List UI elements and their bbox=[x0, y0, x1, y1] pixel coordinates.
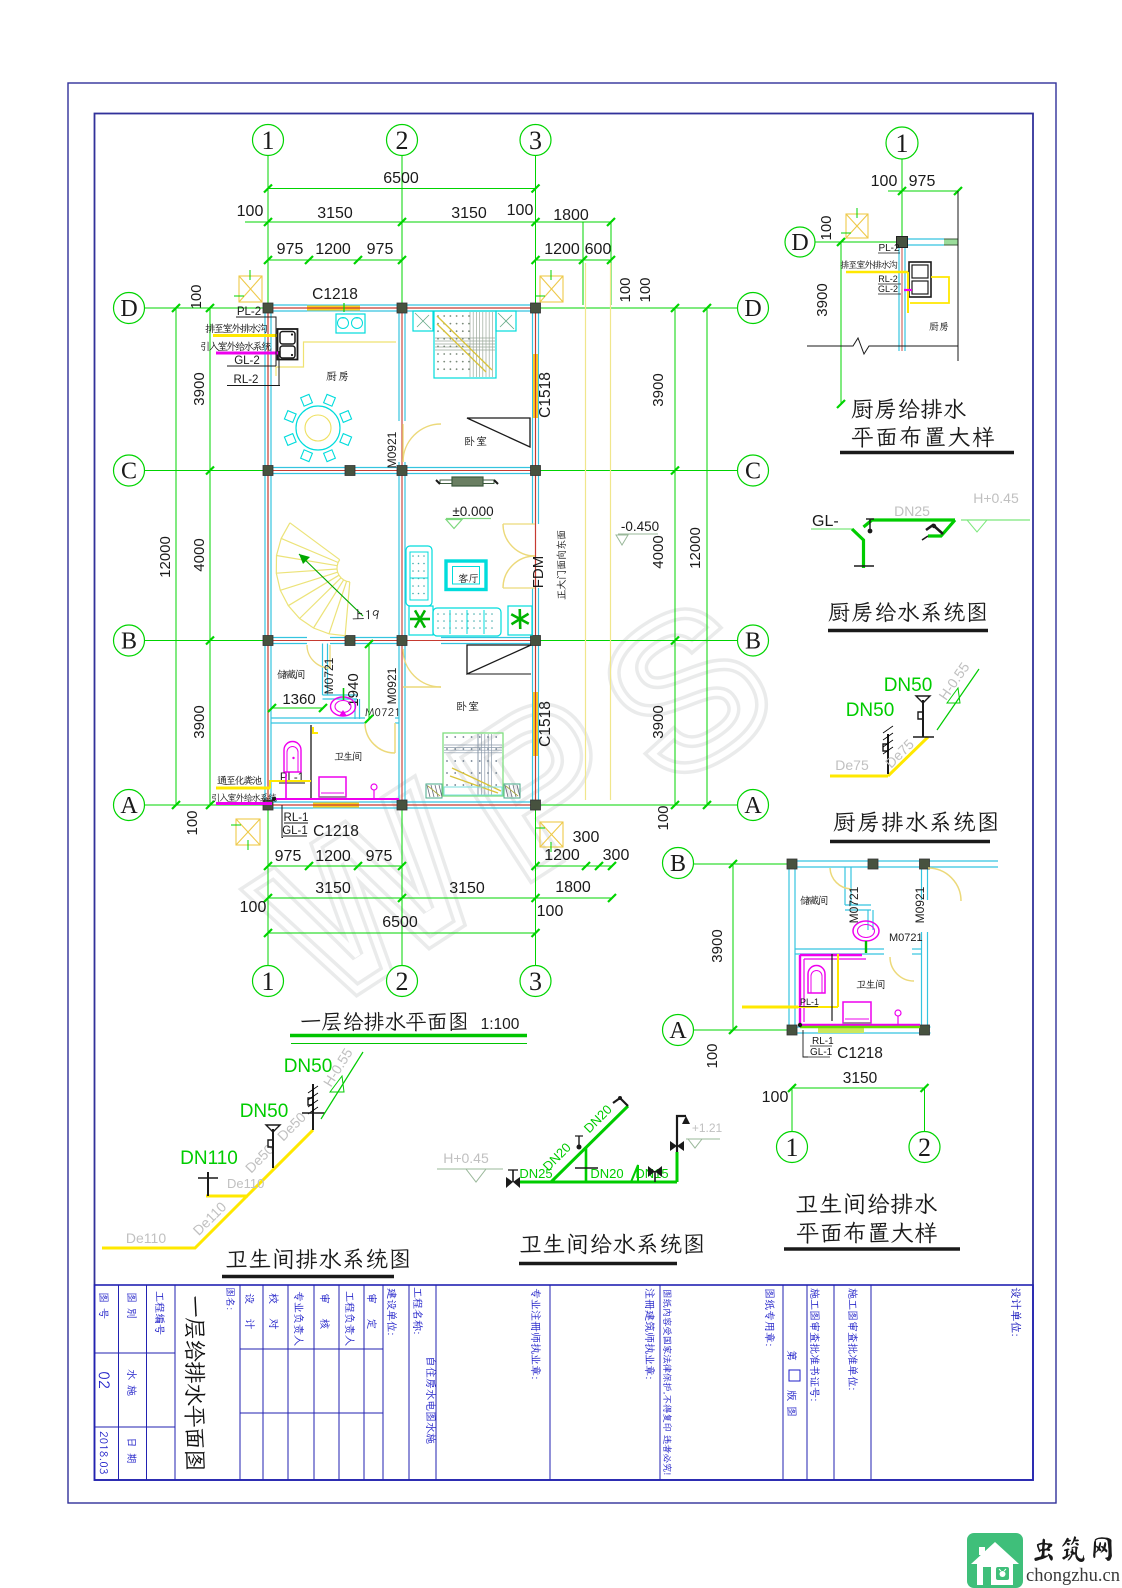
svg-text:±0.000: ±0.000 bbox=[452, 504, 493, 519]
svg-text:1800: 1800 bbox=[553, 207, 589, 224]
svg-text:1: 1 bbox=[262, 967, 275, 996]
svg-text:M0721: M0721 bbox=[847, 886, 861, 923]
svg-text:975: 975 bbox=[367, 241, 394, 258]
svg-text:3: 3 bbox=[529, 967, 542, 996]
svg-text:DN50: DN50 bbox=[846, 700, 895, 721]
svg-text:12000: 12000 bbox=[687, 527, 704, 569]
svg-text:RL-1: RL-1 bbox=[812, 1036, 834, 1047]
svg-text:4000: 4000 bbox=[191, 538, 208, 571]
svg-text:D: D bbox=[791, 230, 808, 256]
svg-text:1800: 1800 bbox=[555, 879, 591, 896]
svg-text:PL-1: PL-1 bbox=[800, 997, 819, 1007]
svg-text:1: 1 bbox=[786, 1133, 799, 1162]
svg-text:3900: 3900 bbox=[191, 705, 208, 738]
svg-text:6500: 6500 bbox=[382, 914, 418, 931]
svg-text:GL-1: GL-1 bbox=[810, 1047, 833, 1058]
svg-text:chongzhu.cn: chongzhu.cn bbox=[1026, 1566, 1120, 1586]
svg-text:M0921: M0921 bbox=[385, 667, 399, 704]
svg-text:GL-1: GL-1 bbox=[282, 825, 308, 837]
svg-text:De75: De75 bbox=[835, 757, 869, 773]
svg-text:4000: 4000 bbox=[650, 535, 667, 568]
svg-text:100: 100 bbox=[704, 1043, 721, 1068]
svg-text:DN50: DN50 bbox=[884, 675, 933, 696]
svg-text:600: 600 bbox=[585, 241, 612, 258]
svg-text:3150: 3150 bbox=[315, 880, 351, 897]
svg-text:100: 100 bbox=[762, 1089, 789, 1106]
svg-text:+1.21: +1.21 bbox=[692, 1121, 723, 1135]
svg-text:M0921: M0921 bbox=[385, 431, 399, 468]
svg-text:1200: 1200 bbox=[315, 241, 351, 258]
svg-text:100: 100 bbox=[507, 202, 534, 219]
svg-text:GL-2: GL-2 bbox=[234, 355, 260, 367]
svg-text:FDM: FDM bbox=[530, 556, 547, 589]
svg-text:3150: 3150 bbox=[843, 1070, 878, 1087]
svg-text:12000: 12000 bbox=[157, 536, 174, 578]
svg-text:DN110: DN110 bbox=[180, 1148, 238, 1169]
svg-text:3900: 3900 bbox=[709, 929, 726, 962]
svg-text:3150: 3150 bbox=[449, 880, 485, 897]
svg-text:100: 100 bbox=[184, 810, 201, 835]
svg-text:1360: 1360 bbox=[282, 691, 315, 708]
svg-text:DN50: DN50 bbox=[240, 1101, 289, 1122]
svg-text:-0.450: -0.450 bbox=[621, 519, 659, 534]
svg-text:GL-2: GL-2 bbox=[878, 284, 898, 294]
svg-text:3150: 3150 bbox=[451, 205, 487, 222]
svg-text:H+0.45: H+0.45 bbox=[443, 1150, 489, 1166]
svg-text:D: D bbox=[120, 296, 137, 322]
svg-text:300: 300 bbox=[603, 847, 630, 864]
svg-text:De110: De110 bbox=[126, 1230, 166, 1246]
svg-text:3900: 3900 bbox=[650, 705, 667, 738]
svg-text:DN20: DN20 bbox=[540, 1140, 574, 1174]
svg-text:B: B bbox=[670, 851, 686, 877]
svg-text:1: 1 bbox=[896, 129, 909, 158]
svg-text:A: A bbox=[744, 793, 762, 819]
svg-text:100: 100 bbox=[617, 277, 634, 302]
svg-text:A: A bbox=[120, 793, 138, 819]
svg-text:6500: 6500 bbox=[383, 170, 419, 187]
svg-text:100: 100 bbox=[637, 277, 654, 302]
svg-text:1200: 1200 bbox=[315, 848, 351, 865]
svg-text:PL-1: PL-1 bbox=[280, 772, 304, 784]
svg-text:H-0.55: H-0.55 bbox=[935, 659, 972, 703]
svg-text:C1518: C1518 bbox=[537, 701, 554, 747]
svg-text:100: 100 bbox=[537, 903, 564, 920]
svg-text:100: 100 bbox=[240, 899, 267, 916]
svg-text:M0921: M0921 bbox=[913, 886, 927, 923]
svg-text:3150: 3150 bbox=[317, 205, 353, 222]
svg-text:C: C bbox=[121, 459, 137, 485]
svg-text:M0721: M0721 bbox=[889, 932, 923, 944]
svg-text:100: 100 bbox=[655, 805, 672, 830]
svg-text:3900: 3900 bbox=[814, 283, 831, 316]
svg-text:1200: 1200 bbox=[544, 847, 580, 864]
svg-text:A: A bbox=[669, 1018, 687, 1044]
svg-text:PL-2: PL-2 bbox=[237, 306, 261, 318]
svg-text:RL-1: RL-1 bbox=[284, 812, 309, 824]
svg-text:RL-2: RL-2 bbox=[878, 274, 898, 284]
svg-text:C1218: C1218 bbox=[312, 286, 358, 303]
svg-text:975: 975 bbox=[277, 241, 304, 258]
svg-text:2: 2 bbox=[918, 1133, 931, 1162]
svg-text:3: 3 bbox=[529, 126, 542, 155]
svg-text:975: 975 bbox=[366, 848, 393, 865]
svg-text:C: C bbox=[745, 459, 761, 485]
svg-text:100: 100 bbox=[818, 215, 835, 240]
svg-text:975: 975 bbox=[909, 173, 936, 190]
svg-text:B: B bbox=[121, 629, 137, 655]
svg-text:DN20: DN20 bbox=[581, 1102, 615, 1136]
svg-text:C1518: C1518 bbox=[537, 372, 554, 418]
svg-text:1:100: 1:100 bbox=[481, 1016, 520, 1033]
svg-text:C1218: C1218 bbox=[837, 1045, 883, 1062]
svg-text:1200: 1200 bbox=[544, 241, 580, 258]
svg-text:M0721: M0721 bbox=[322, 657, 336, 694]
svg-text:B: B bbox=[745, 629, 761, 655]
svg-text:1: 1 bbox=[262, 126, 275, 155]
svg-text:DN25: DN25 bbox=[894, 503, 930, 519]
svg-text:300: 300 bbox=[573, 829, 600, 846]
svg-text:De110: De110 bbox=[227, 1176, 264, 1191]
svg-text:3900: 3900 bbox=[191, 372, 208, 405]
svg-text:RL-2: RL-2 bbox=[234, 374, 259, 386]
svg-text:100: 100 bbox=[188, 284, 205, 309]
svg-text:D: D bbox=[744, 296, 761, 322]
svg-text:3900: 3900 bbox=[650, 373, 667, 406]
svg-text:GL-: GL- bbox=[812, 513, 839, 530]
svg-text:C1218: C1218 bbox=[313, 823, 359, 840]
svg-text:100: 100 bbox=[871, 173, 898, 190]
svg-text:975: 975 bbox=[275, 848, 302, 865]
svg-text:H+0.45: H+0.45 bbox=[973, 490, 1019, 506]
svg-text:DN20: DN20 bbox=[590, 1166, 623, 1181]
svg-text:2: 2 bbox=[396, 967, 409, 996]
svg-text:100: 100 bbox=[237, 203, 264, 220]
svg-text:PL-2: PL-2 bbox=[878, 243, 900, 254]
svg-text:2: 2 bbox=[396, 126, 409, 155]
